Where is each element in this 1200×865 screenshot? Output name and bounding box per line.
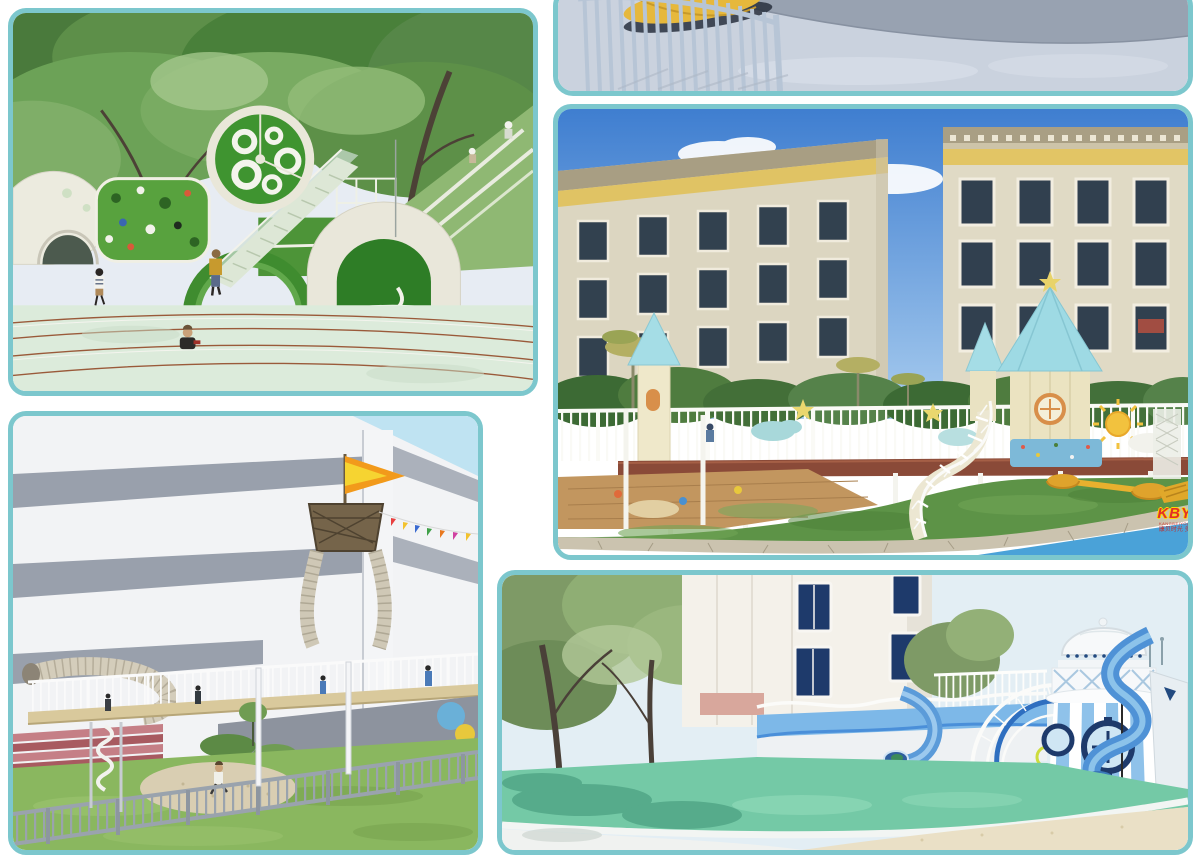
climbing-wall bbox=[96, 179, 209, 262]
pavement-shadow bbox=[522, 828, 602, 842]
track-ground bbox=[13, 305, 533, 391]
seaside-playground-render bbox=[502, 575, 1188, 850]
mid-tree-top bbox=[946, 609, 1014, 661]
panel-blue-seaside-playground bbox=[497, 570, 1193, 855]
paved-yard-render bbox=[558, 0, 1188, 91]
circle-wheel-structure bbox=[206, 106, 314, 213]
panel-green-forest-playground bbox=[8, 8, 538, 396]
green-playground-render bbox=[13, 13, 533, 391]
ship-playground-render bbox=[13, 416, 478, 850]
courtyard-playground-render bbox=[558, 109, 1188, 555]
panel-courtyard-castle-playground: KBY KANGBEIYOU 康贝时光 多 bbox=[553, 104, 1193, 560]
panel-paved-yard-corner bbox=[553, 0, 1193, 96]
panel-ship-adventure-playground bbox=[8, 411, 483, 855]
playground-collage: KBY KANGBEIYOU 康贝时光 多 bbox=[0, 0, 1200, 865]
